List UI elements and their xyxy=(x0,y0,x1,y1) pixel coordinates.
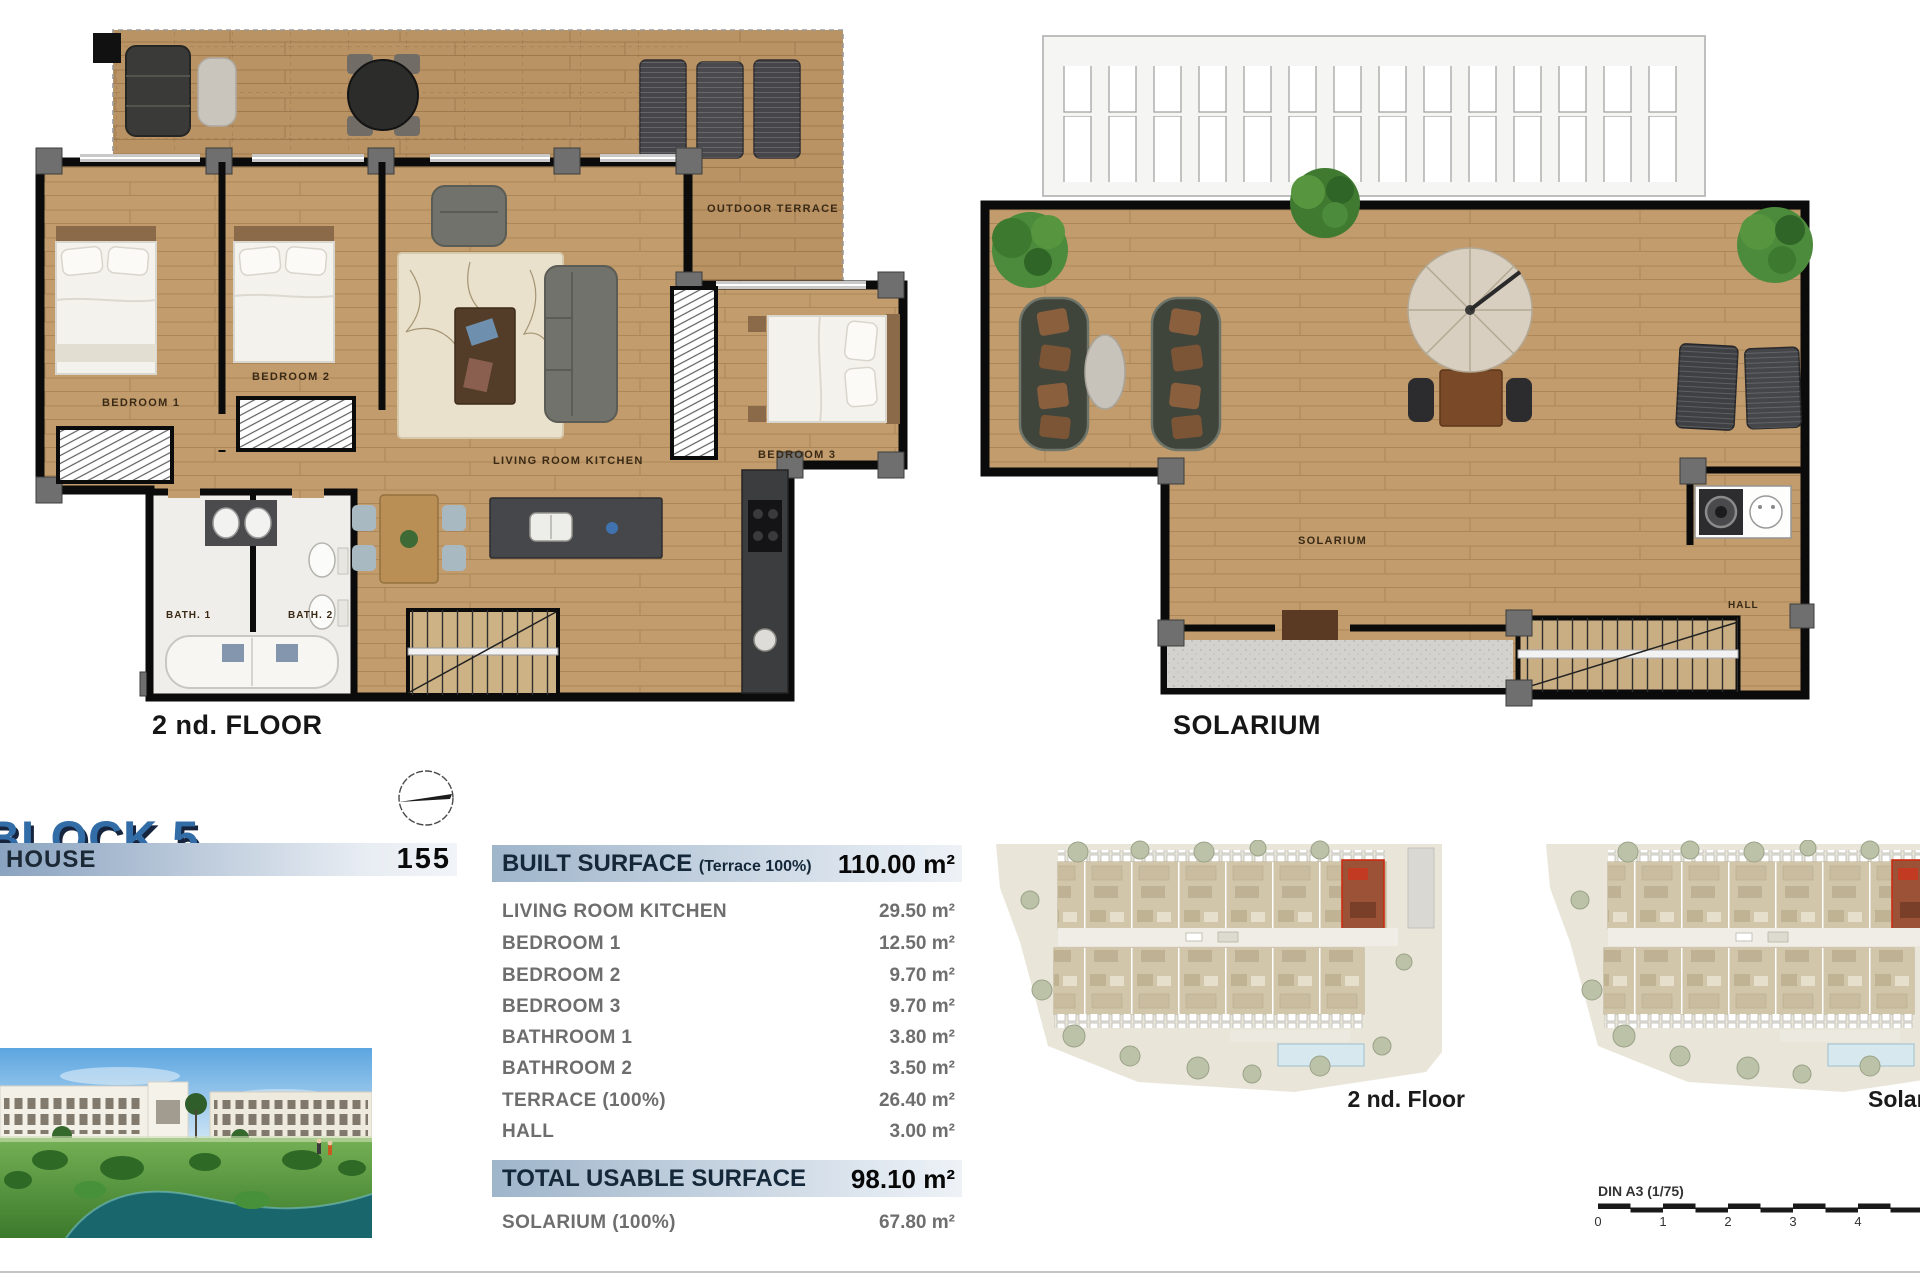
row-value: 9.70 m² xyxy=(890,965,955,987)
siteplan2-caption: Solarium xyxy=(1868,1086,1920,1113)
pergola xyxy=(1043,36,1705,196)
row-label: LIVING ROOM KITCHEN xyxy=(502,901,727,923)
bedroom2-label: BEDROOM 2 xyxy=(252,371,330,383)
row-label: BEDROOM 1 xyxy=(502,933,621,955)
total-label: TOTAL USABLE SURFACE xyxy=(502,1165,806,1193)
built-surface-header: BUILT SURFACE (Terrace 100%) 110.00 m² xyxy=(492,845,962,882)
scale-bar: DIN A3 (1/75) 0 1 2 3 4 xyxy=(1590,1182,1920,1228)
row-value: 3.80 m² xyxy=(890,1027,955,1049)
row-value: 3.50 m² xyxy=(890,1058,955,1080)
row-label: BATHROOM 2 xyxy=(502,1058,632,1080)
scale-tick: 0 xyxy=(1594,1214,1601,1228)
siteplan-solarium xyxy=(1540,840,1920,1160)
row-label: BATHROOM 1 xyxy=(502,1027,632,1049)
row-value: 3.00 m² xyxy=(890,1121,955,1143)
table-row: BATHROOM 13.80 m² xyxy=(492,1027,962,1051)
row-value: 67.80 m² xyxy=(879,1212,955,1234)
total-value: 98.10 m² xyxy=(851,1164,955,1195)
floorplan-solarium: SOLARIUM HALL xyxy=(830,0,1920,760)
table-row: HALL3.00 m² xyxy=(492,1121,962,1145)
bedroom3-label: BEDROOM 3 xyxy=(758,449,836,461)
siteplan-drawing xyxy=(996,840,1442,1092)
surface-table: BUILT SURFACE (Terrace 100%) 110.00 m² L… xyxy=(492,845,962,1255)
scale-tick: 1 xyxy=(1659,1214,1666,1228)
house-bar: HOUSE 155 xyxy=(0,843,457,876)
hall-label: HALL xyxy=(1728,600,1759,611)
scale-tick: 2 xyxy=(1724,1214,1731,1228)
house-number: 155 xyxy=(397,843,451,876)
floorplan-2nd-floor: OUTDOOR TERRACE BEDROOM 1 BEDROOM 2 BEDR… xyxy=(0,0,960,760)
bedroom1-furniture xyxy=(56,226,172,482)
sun-loungers xyxy=(640,60,800,158)
row-label: TERRACE (100%) xyxy=(502,1090,666,1112)
stairs xyxy=(408,610,558,695)
solarium-room-label: SOLARIUM xyxy=(1298,535,1367,547)
scale-tick: 3 xyxy=(1789,1214,1796,1228)
house-label: HOUSE xyxy=(6,846,96,874)
built-surface-value: 110.00 m² xyxy=(838,849,955,880)
table-row: TERRACE (100%)26.40 m² xyxy=(492,1090,962,1114)
table-row: SOLARIUM (100%)67.80 m² xyxy=(492,1212,962,1236)
plan1-caption: 2 nd. FLOOR xyxy=(152,710,323,741)
row-label: SOLARIUM (100%) xyxy=(502,1212,676,1234)
row-value: 26.40 m² xyxy=(879,1090,955,1112)
table-row: BEDROOM 112.50 m² xyxy=(492,933,962,957)
siteplan1-caption: 2 nd. Floor xyxy=(1240,1086,1465,1113)
row-value: 9.70 m² xyxy=(890,996,955,1018)
row-label: HALL xyxy=(502,1121,554,1143)
table-row: BEDROOM 39.70 m² xyxy=(492,996,962,1020)
table-row: BATHROOM 23.50 m² xyxy=(492,1058,962,1082)
built-surface-label: BUILT SURFACE xyxy=(502,850,692,877)
bath2-label: BATH. 2 xyxy=(288,610,333,621)
solarium-stairs xyxy=(1518,618,1738,692)
bath1-label: BATH. 1 xyxy=(166,610,211,621)
bathrooms xyxy=(150,487,354,697)
total-surface-bar: TOTAL USABLE SURFACE 98.10 m² xyxy=(492,1160,962,1197)
scale-tick: 4 xyxy=(1854,1214,1861,1228)
built-surface-note: (Terrace 100%) xyxy=(699,858,812,875)
bedroom1-label: BEDROOM 1 xyxy=(102,397,180,409)
row-value: 12.50 m² xyxy=(879,933,955,955)
terrace-dining-set xyxy=(347,54,420,136)
golf-course-photo xyxy=(0,1048,372,1238)
table-row: LIVING ROOM KITCHEN29.50 m² xyxy=(492,901,962,925)
living-label: LIVING ROOM KITCHEN xyxy=(493,455,644,467)
row-label: BEDROOM 3 xyxy=(502,996,621,1018)
table-row: BEDROOM 29.70 m² xyxy=(492,965,962,989)
row-label: BEDROOM 2 xyxy=(502,965,621,987)
north-indicator xyxy=(395,767,457,829)
plan-sheet: OUTDOOR TERRACE BEDROOM 1 BEDROOM 2 BEDR… xyxy=(0,0,1920,1280)
scale-label: DIN A3 (1/75) xyxy=(1598,1183,1684,1199)
outdoor-terrace-label: OUTDOOR TERRACE xyxy=(707,203,839,215)
sheet-bottom-border xyxy=(0,1271,1920,1273)
row-value: 29.50 m² xyxy=(879,901,955,923)
plan2-caption: SOLARIUM xyxy=(1173,710,1321,741)
